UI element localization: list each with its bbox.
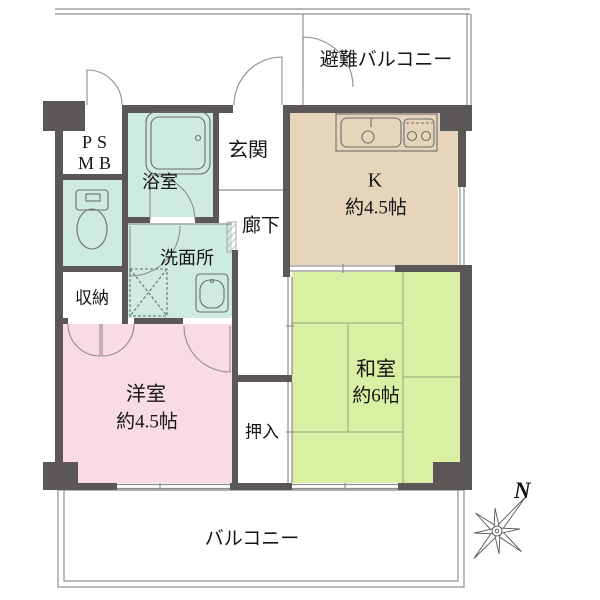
wall-segment (460, 272, 472, 462)
wall-segment (283, 105, 290, 277)
hallway-label: 廊下 (242, 211, 280, 238)
entrance-label: 玄関 (228, 134, 268, 163)
bathroom-label: 浴室 (142, 168, 178, 194)
wall-segment (128, 217, 150, 223)
wall-segment (238, 375, 292, 382)
wall-segment (395, 265, 472, 272)
wall-segment (213, 105, 219, 223)
wall-segment (122, 105, 128, 324)
kitchen-window-backing (458, 187, 467, 265)
compass-north-label: N (513, 478, 532, 503)
japanese-room-label: 和室 (356, 353, 396, 382)
wall-segment (230, 483, 292, 490)
wall-segment (78, 483, 117, 490)
wall-segment (55, 318, 68, 324)
wall-pillar-bottom-left (43, 462, 78, 490)
wall-segment (458, 131, 466, 187)
entrance-step-hatch (227, 222, 236, 252)
compass-spike (471, 532, 496, 561)
wall-segment (232, 250, 238, 324)
meter-box-door-arc (87, 70, 122, 105)
wall-pillar-top-left (43, 101, 85, 131)
entrance-door-arc (234, 57, 282, 105)
western-room-label: 洋室 (126, 378, 166, 407)
western-room-size: 約4.5帖 (116, 407, 178, 434)
japanese-room-size: 約6帖 (352, 381, 400, 408)
evac-balcony-label: 避難バルコニー (320, 45, 453, 72)
wall-segment (398, 483, 433, 490)
wall-segment (232, 324, 238, 487)
bathroom-floor (128, 113, 213, 217)
wall-segment (134, 318, 183, 324)
wall-pillar-top-right (440, 105, 472, 131)
wall-segment (63, 174, 128, 180)
kitchen-size-label: 約4.5帖 (345, 193, 407, 220)
kitchen-label: K (368, 170, 382, 193)
compass-spike (498, 531, 524, 554)
floor-plan: N 避難バルコニー K 約4.5帖 玄関 廊下 浴室 PS MB 洗面所 収納 … (0, 0, 600, 600)
wall-segment (63, 266, 128, 272)
closet-label: 押入 (245, 418, 279, 443)
wall-pillar-bottom-right (433, 462, 472, 490)
wall-segment (195, 217, 219, 223)
balcony-label: バルコニー (205, 524, 300, 551)
storage-label: 収納 (75, 284, 109, 309)
toilet-floor (63, 180, 122, 266)
washroom-floor (128, 224, 232, 318)
washroom-label: 洗面所 (160, 244, 214, 270)
wall-segment (55, 131, 63, 462)
pipe-space-label: PS MB (78, 132, 116, 174)
wall-segment (283, 105, 440, 113)
pipe-space-line1: PS (78, 132, 116, 153)
pipe-space-line2: MB (78, 153, 116, 174)
